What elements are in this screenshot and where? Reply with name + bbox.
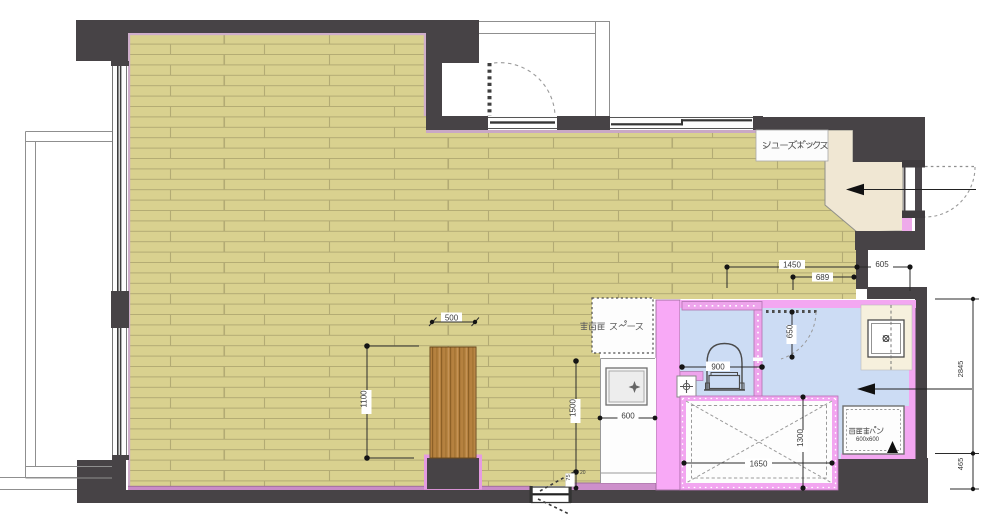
svg-text:600x600: 600x600	[856, 437, 880, 443]
svg-text:600: 600	[621, 411, 635, 420]
svg-text:500: 500	[445, 313, 459, 322]
svg-text:689: 689	[816, 273, 830, 282]
svg-text:75: 75	[566, 474, 572, 480]
svg-text:1500: 1500	[569, 399, 578, 417]
svg-text:1300: 1300	[796, 429, 805, 447]
svg-text:1450: 1450	[783, 261, 801, 270]
svg-text:605: 605	[875, 260, 889, 269]
svg-text:465: 465	[956, 458, 965, 471]
svg-text:900: 900	[711, 363, 725, 372]
svg-text:650: 650	[786, 324, 795, 338]
svg-text:20: 20	[580, 470, 586, 476]
svg-text:2845: 2845	[956, 361, 965, 378]
svg-text:1650: 1650	[750, 460, 768, 469]
svg-text:1100: 1100	[360, 390, 369, 408]
